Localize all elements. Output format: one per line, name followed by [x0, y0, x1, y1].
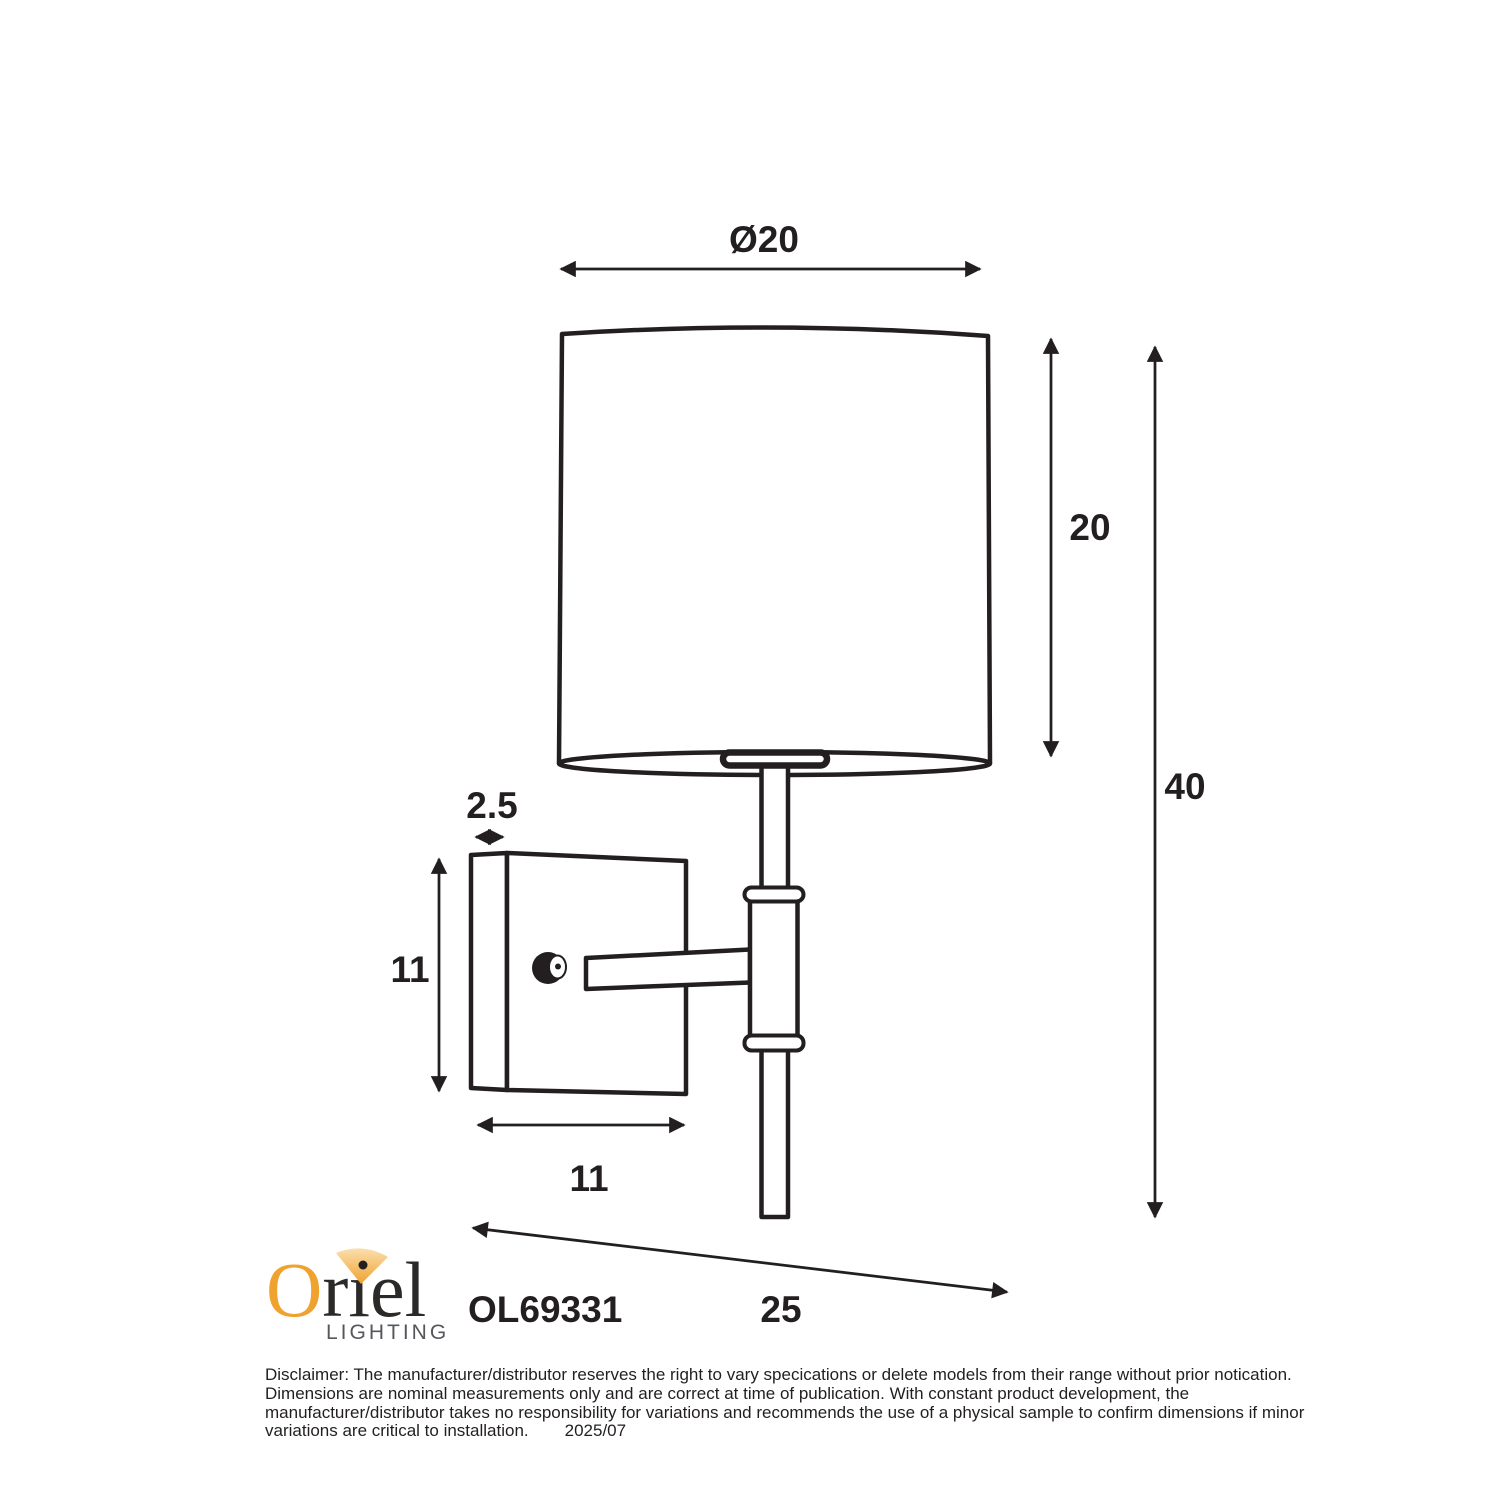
- publication-date: 2025/07: [565, 1421, 626, 1440]
- dimension-drawing: Ø20 20 40 2.5 11 11 25 OL69331 Oriel LIG…: [0, 0, 1500, 1500]
- stem-collar-top: [745, 888, 804, 902]
- wall-arm: [586, 950, 750, 990]
- brand-logo: Oriel LIGHTING: [266, 1246, 449, 1344]
- dim-label-plate-depth: 2.5: [466, 785, 517, 826]
- disclaimer-line-3: manufacturer/distributor takes no respon…: [265, 1404, 1304, 1423]
- dim-label-shade-height: 20: [1069, 507, 1110, 548]
- dim-line-projection: [473, 1228, 1007, 1292]
- disclaimer-text: Disclaimer: The manufacturer/distributor…: [265, 1366, 1304, 1441]
- stem-lower: [762, 1038, 789, 1217]
- dim-label-overall-height: 40: [1164, 766, 1205, 807]
- dim-label-plate-width: 11: [569, 1158, 608, 1199]
- disclaimer-line-4: variations are critical to installation.…: [265, 1422, 1304, 1441]
- lamp-holder-cap: [723, 753, 827, 766]
- stem-collar-bottom: [745, 1036, 804, 1051]
- dim-label-plate-height: 11: [390, 949, 429, 990]
- disclaimer-line-4-text: variations are critical to installation.: [265, 1421, 529, 1440]
- disclaimer-line-1: Disclaimer: The manufacturer/distributor…: [265, 1366, 1304, 1385]
- stem-body: [750, 898, 798, 1040]
- dimension-lines: [439, 269, 1155, 1292]
- switch-knob-dot: [555, 964, 561, 970]
- disclaimer-line-2: Dimensions are nominal measurements only…: [265, 1385, 1304, 1404]
- model-number: OL69331: [468, 1289, 622, 1330]
- dim-label-projection: 25: [760, 1289, 801, 1330]
- lamp-shade-outline: [559, 327, 990, 763]
- wall-plate-side: [471, 853, 507, 1090]
- lighting-subtitle: LIGHTING: [326, 1321, 449, 1344]
- stem-upper: [762, 756, 789, 892]
- cone-bulb-dot-icon: [359, 1261, 368, 1270]
- spec-sheet: Ø20 20 40 2.5 11 11 25 OL69331 Oriel LIG…: [0, 0, 1500, 1500]
- dim-label-shade-diameter: Ø20: [729, 219, 799, 260]
- wall-light-drawing: [471, 327, 990, 1217]
